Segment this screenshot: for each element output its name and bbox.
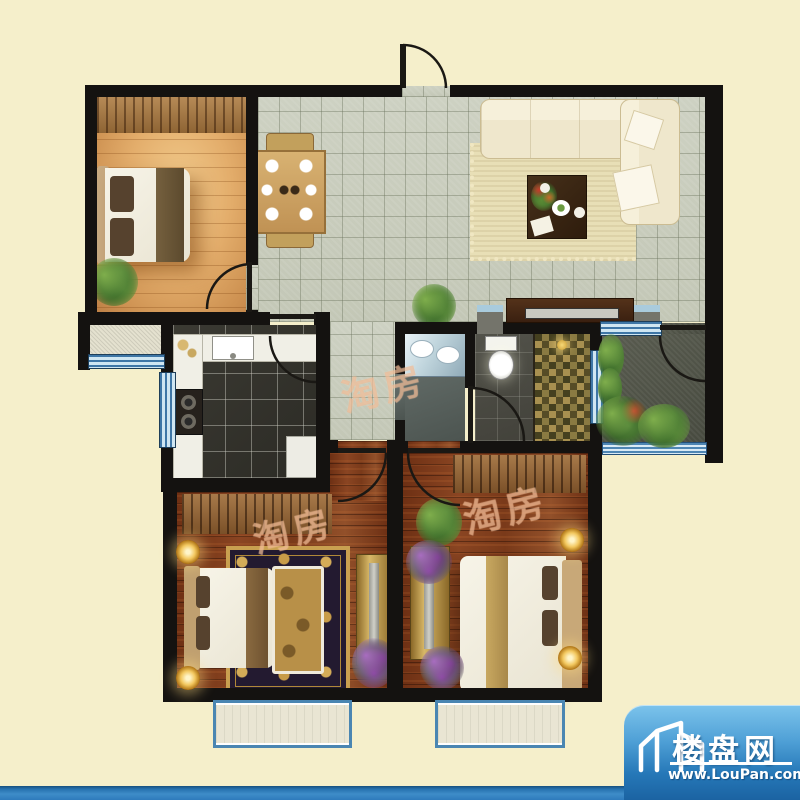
wall [450,85,723,97]
coffee-table [527,175,587,239]
wall-pier [477,305,503,334]
pillow [196,616,210,650]
site-url: www.LouPan.com [668,767,800,783]
counter-items [177,339,199,359]
wall [705,85,723,463]
paper [530,216,554,237]
bed-fold [486,556,508,692]
toilet [484,336,516,380]
wall [460,441,602,453]
bedside-lamp [176,540,200,564]
wardrobe [97,97,246,133]
bay-window [213,700,352,748]
wall [161,478,330,492]
bed-fold [246,568,268,668]
window [159,372,176,448]
pillow [196,576,210,608]
pillow [542,610,558,646]
wall [85,85,97,325]
bedside-lamp [558,646,582,670]
wall [588,450,602,702]
floorplan-image: 淘房 淘房 淘房 楼盘网 www.LouPan.com [0,0,800,800]
loupan-logo-badge: 楼盘网 www.LouPan.com [624,705,800,800]
toilet-tank [485,336,517,351]
wall [161,446,173,480]
flowers [420,646,464,690]
dining-table [256,150,326,234]
pillow [542,566,558,600]
bed-runner [156,168,184,262]
bay-window-seat [90,325,161,356]
wall [85,312,270,325]
burner [181,414,196,429]
wall [387,440,403,702]
flowers [406,540,452,584]
door-leaf [247,262,252,312]
wall [314,312,330,325]
plant [90,258,138,306]
window [88,354,165,369]
foot-bench [272,566,324,674]
dinnerware [258,152,320,228]
kitchen-sink [212,336,254,360]
bedside-lamp [560,528,584,552]
door-leaf [660,325,706,330]
door-leaf [338,448,386,453]
wall [163,478,177,702]
burner [181,395,196,410]
bay-window [435,700,565,748]
toilet-bowl [488,350,514,380]
wall [395,441,408,453]
wall [465,334,475,388]
tv-console [506,298,634,323]
wall [85,85,255,97]
shower-head [557,340,567,350]
pillow [110,218,134,256]
wall [316,325,330,478]
wall [246,85,258,265]
cup [540,183,550,193]
door-leaf [468,386,473,443]
stove [175,389,203,435]
entry-threshold [402,86,450,97]
pillow [110,176,134,212]
tv [525,308,619,319]
wash-basin [436,346,460,364]
bed-headboard [562,560,582,690]
badge-rule [670,762,792,765]
door-leaf [400,44,406,88]
plate [552,200,570,216]
bedside-lamp [176,666,200,690]
wall [255,85,402,97]
faucet [230,353,236,359]
plant [638,404,690,448]
cup [574,207,585,218]
wall [318,440,338,453]
plant [416,498,462,546]
door-leaf [408,448,460,453]
shower-mosaic [533,334,592,441]
sofa-pillow [612,164,659,211]
wall [246,310,258,325]
door-leaf [270,314,316,319]
